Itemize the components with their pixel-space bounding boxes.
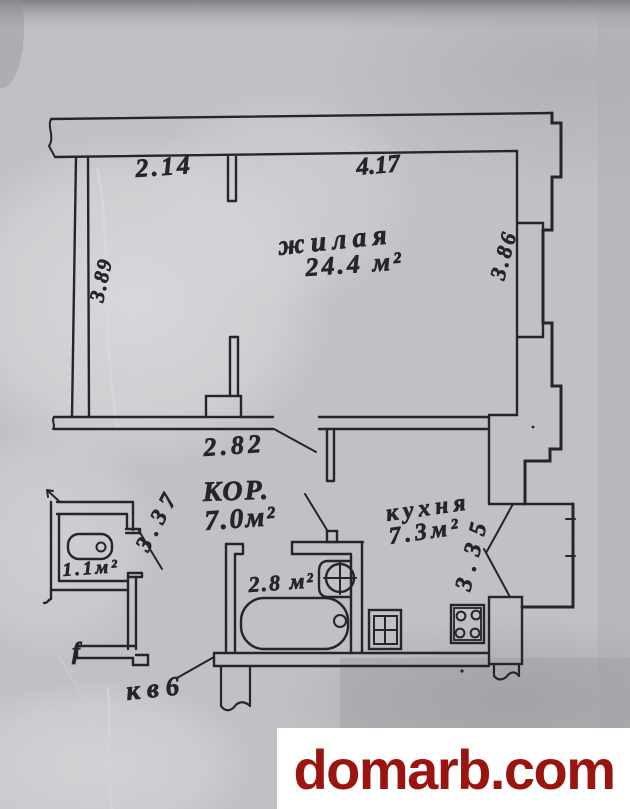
- svg-text:2.8 м²: 2.8 м²: [247, 567, 316, 597]
- svg-text:2.82: 2.82: [201, 429, 265, 462]
- svg-text:7.0м²: 7.0м²: [203, 501, 278, 537]
- svg-text:1.1м²: 1.1м²: [62, 556, 121, 581]
- svg-text:кв6: кв6: [124, 670, 187, 706]
- svg-text:4.17: 4.17: [354, 150, 402, 181]
- svg-text:domarb.com: domarb.com: [293, 738, 614, 801]
- svg-text:2.14: 2.14: [133, 150, 193, 183]
